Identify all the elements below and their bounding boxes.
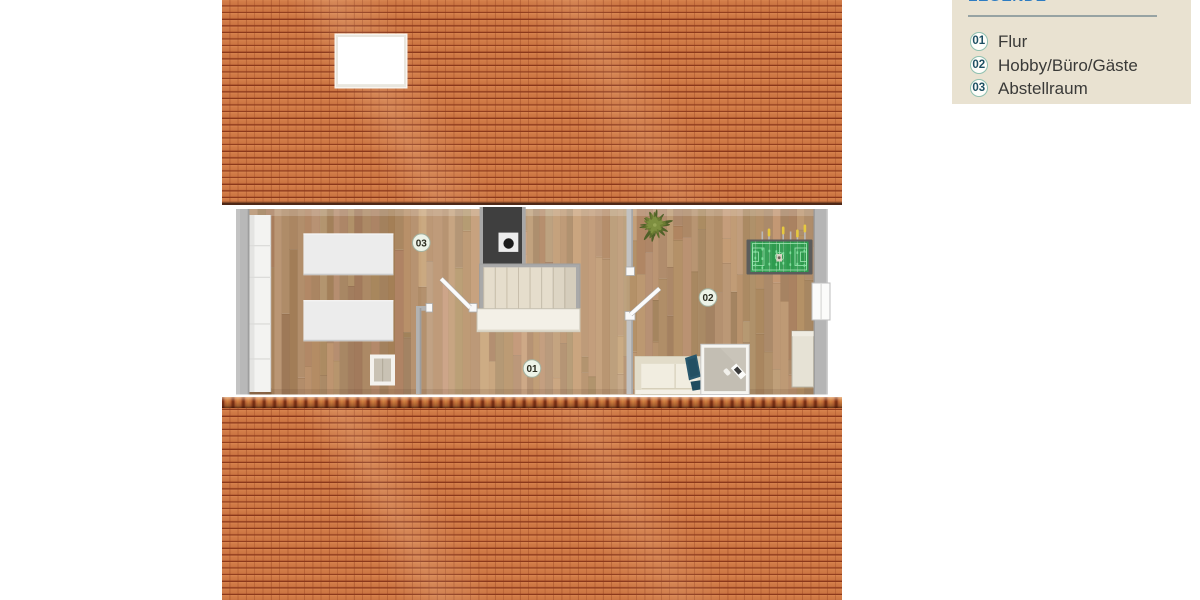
svg-text:03: 03	[416, 238, 428, 249]
svg-text:01: 01	[526, 364, 538, 375]
svg-text:02: 02	[702, 293, 714, 304]
